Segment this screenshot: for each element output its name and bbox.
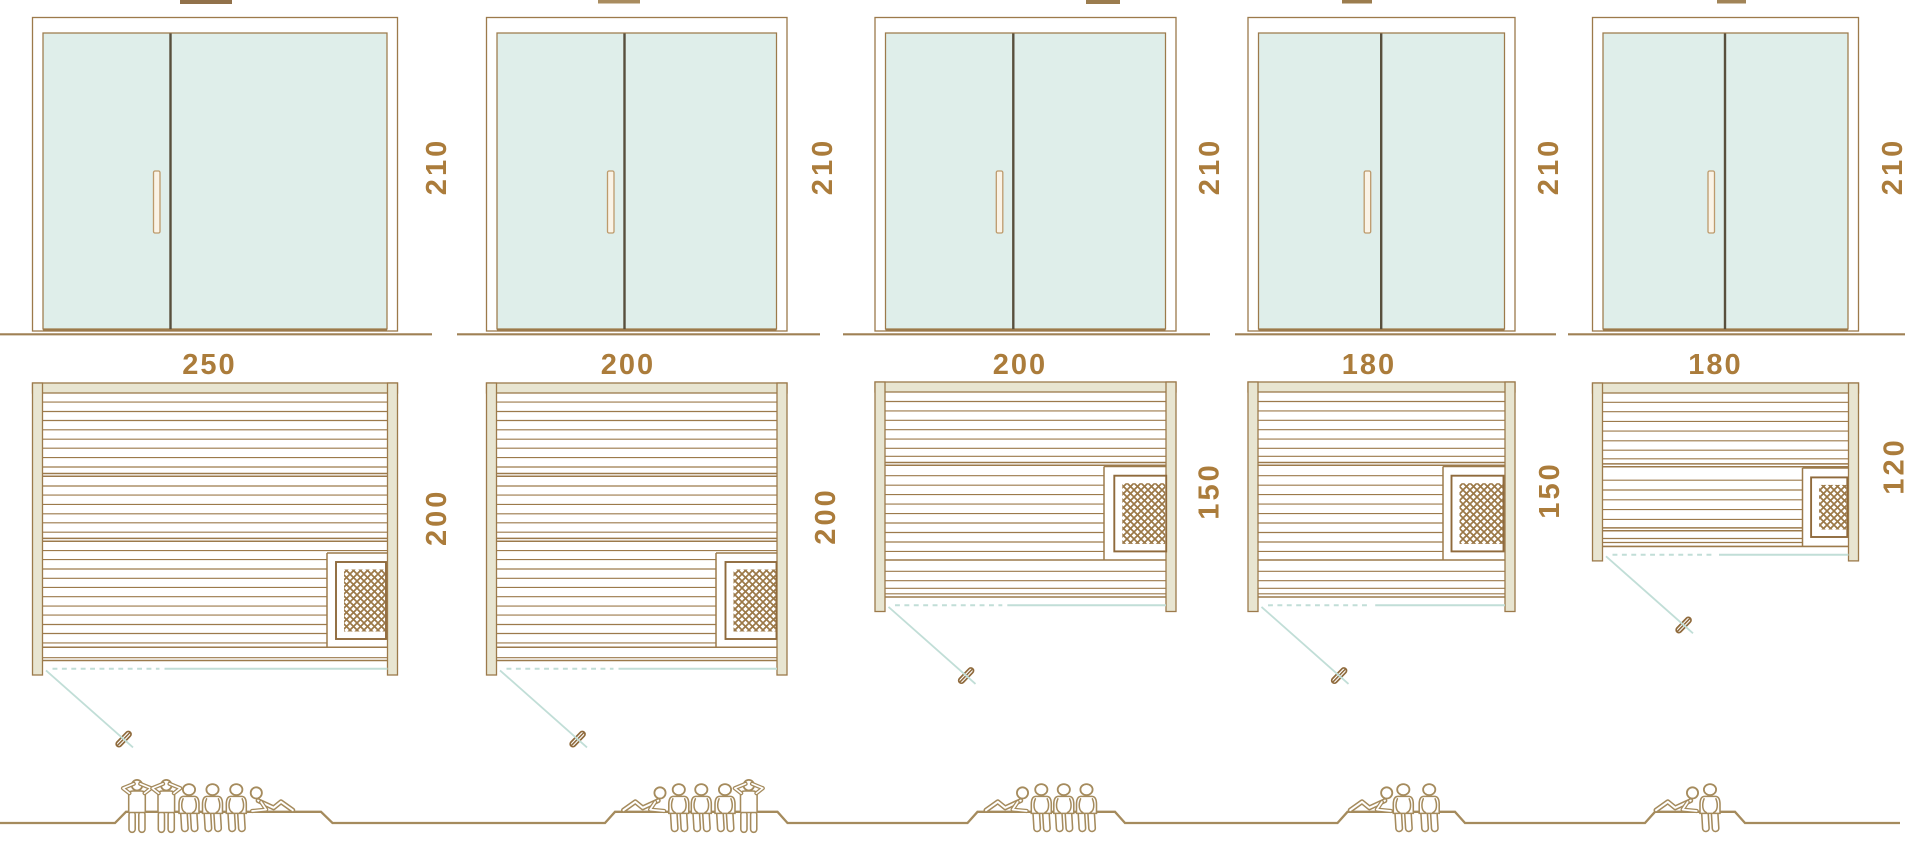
svg-text:200: 200 [421,489,453,546]
svg-text:150: 150 [1534,461,1566,518]
svg-text:200: 200 [601,349,655,381]
svg-text:210: 210 [807,138,839,195]
svg-text:180: 180 [1342,349,1396,381]
svg-text:200: 200 [993,349,1047,381]
svg-text:200: 200 [810,487,842,544]
svg-text:250: 250 [182,349,236,381]
svg-text:120: 120 [1879,437,1911,494]
svg-text:180: 180 [1688,349,1742,381]
svg-text:210: 210 [1877,138,1909,195]
svg-text:150: 150 [1194,462,1226,519]
svg-text:210: 210 [1533,138,1565,195]
svg-text:210: 210 [1194,138,1226,195]
svg-text:210: 210 [421,138,453,195]
